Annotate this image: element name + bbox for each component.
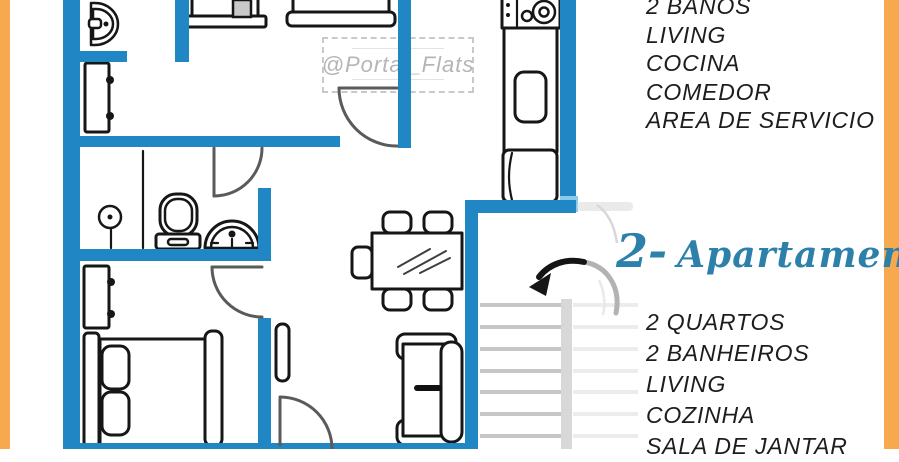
apartment-1-feature-list: 2 BAÑOS LIVING COCINA COMEDOR AREA DE SE… xyxy=(646,0,875,135)
feature-item: 2 BAÑOS xyxy=(646,0,875,21)
apartment-2-number: 2- xyxy=(616,224,667,278)
door-arc-bathroom xyxy=(214,148,262,196)
flyer-page: { "colors": { "accent_orange": "#f6a94e"… xyxy=(0,0,899,449)
door-arc-top-bedroom xyxy=(339,88,397,146)
dining-table-icon xyxy=(352,212,462,310)
feature-item: 2 QUARTOS xyxy=(646,307,848,338)
feature-item: SALA DE JANTAR xyxy=(646,431,848,462)
bed-foot-icon xyxy=(287,0,395,26)
feature-item: AREA DE SERVICIO xyxy=(646,106,875,135)
feature-item: COMEDOR xyxy=(646,78,875,107)
toilet-icon xyxy=(156,194,200,249)
shower-icon xyxy=(99,151,143,248)
apartment-2-feature-list: 2 QUARTOS 2 BANHEIROS LIVING COZINHA SAL… xyxy=(646,307,848,462)
door-arc-bottom-bedroom xyxy=(212,267,262,317)
feature-item: COZINHA xyxy=(646,400,848,431)
stairs xyxy=(480,299,638,449)
left-accent-bar xyxy=(0,0,10,449)
apartment-2-heading: 2- Apartamento xyxy=(616,224,884,286)
stove-icon xyxy=(502,0,560,28)
right-accent-bar xyxy=(884,0,899,449)
dresser-icon xyxy=(84,266,115,328)
vanity-sink-icon xyxy=(89,3,118,45)
feature-item: LIVING xyxy=(646,369,848,400)
feature-item: LIVING xyxy=(646,21,875,50)
cabinet-icon xyxy=(85,63,114,132)
double-bed-icon xyxy=(84,331,222,446)
kitchen-counter-sink-icon xyxy=(504,28,557,152)
feature-item: 2 BANHEIROS xyxy=(646,338,848,369)
wardrobe-icon xyxy=(186,0,266,27)
door-arc-living xyxy=(280,397,332,449)
sofa-icon xyxy=(397,334,462,445)
pedestal-sink-icon xyxy=(205,221,259,248)
console-shelf-icon xyxy=(276,324,289,381)
apartment-2-name: Apartamento xyxy=(677,234,899,276)
feature-item: COCINA xyxy=(646,49,875,78)
fridge-icon xyxy=(503,150,557,202)
